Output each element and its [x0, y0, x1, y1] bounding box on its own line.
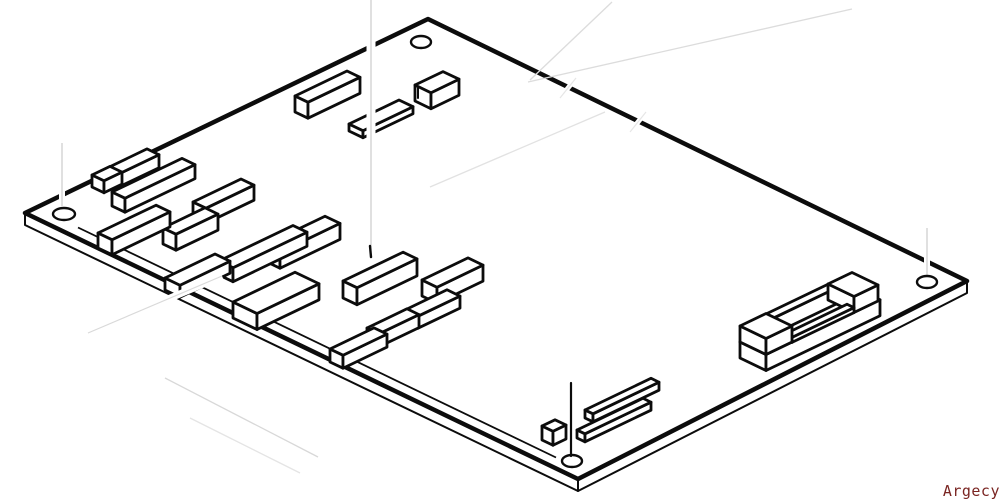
faint-leader-line: [165, 378, 318, 457]
detail-tick: [370, 246, 371, 257]
circuit-board-isometric-diagram: [0, 0, 1004, 503]
faint-leader-line: [190, 418, 300, 473]
faint-leader-line: [530, 2, 612, 80]
watermark-text: Argecy: [943, 484, 1000, 499]
component-small-cube-bottom: [542, 420, 566, 446]
parts-diagram-page: Argecy: [0, 0, 1004, 503]
board-top-surface: [25, 19, 967, 479]
faint-leader-line: [528, 9, 852, 82]
